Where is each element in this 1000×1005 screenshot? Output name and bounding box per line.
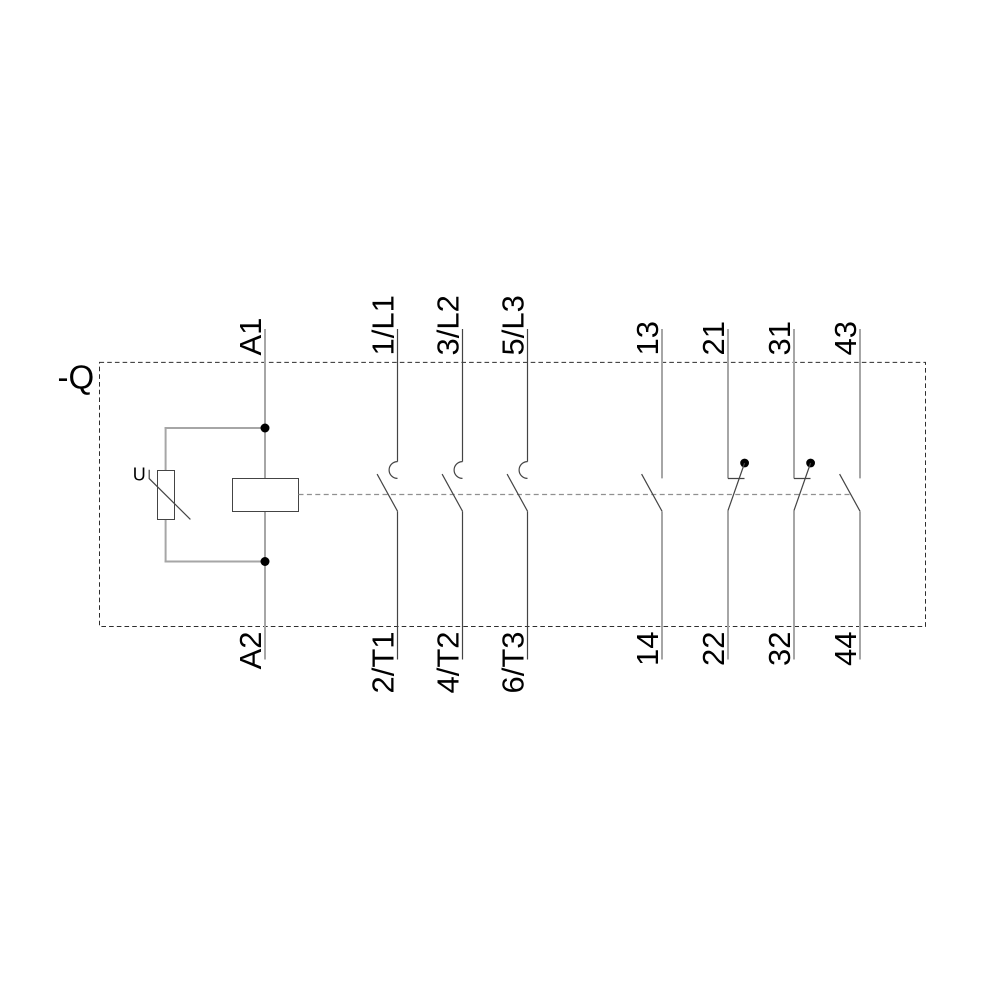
svg-text:14: 14 xyxy=(630,632,665,666)
svg-text:1/L1: 1/L1 xyxy=(366,295,401,355)
svg-text:31: 31 xyxy=(762,321,797,355)
svg-text:A1: A1 xyxy=(233,318,268,356)
svg-text:-Q: -Q xyxy=(58,359,95,396)
svg-text:32: 32 xyxy=(762,632,797,666)
svg-text:22: 22 xyxy=(696,632,731,666)
svg-text:44: 44 xyxy=(828,632,863,666)
svg-text:21: 21 xyxy=(696,321,731,355)
svg-text:5/L3: 5/L3 xyxy=(496,295,531,355)
svg-text:U: U xyxy=(133,465,146,485)
svg-text:4/T2: 4/T2 xyxy=(431,632,466,694)
svg-text:2/T1: 2/T1 xyxy=(366,632,401,694)
svg-text:43: 43 xyxy=(828,321,863,355)
svg-text:6/T3: 6/T3 xyxy=(496,632,531,694)
svg-text:13: 13 xyxy=(630,321,665,355)
svg-text:3/L2: 3/L2 xyxy=(431,295,466,355)
svg-text:A2: A2 xyxy=(233,632,268,670)
